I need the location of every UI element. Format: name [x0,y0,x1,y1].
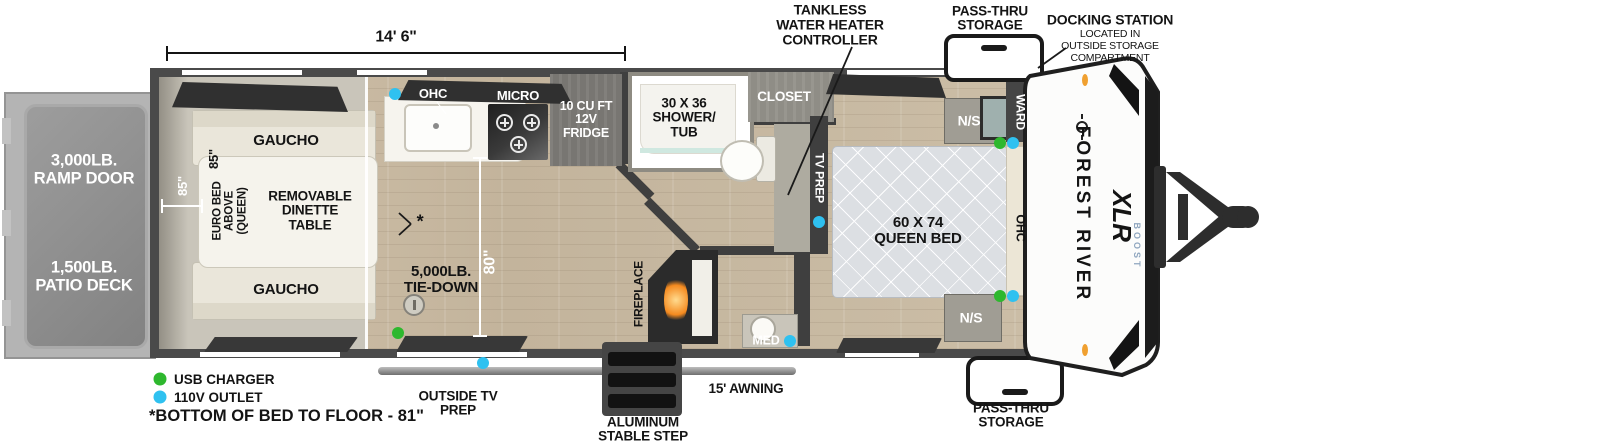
legend-usb-label: USB CHARGER [174,372,275,387]
med-cabinet-label: MED [752,334,779,347]
microwave-label: MICRO [497,89,539,103]
brand-logo-text: FOREST RIVER [1072,126,1092,302]
usb-charger-dot [994,137,1006,149]
outlet-110v-dot [389,88,401,100]
usb-charger-dot [154,373,167,386]
outlet-110v-dot [154,391,167,404]
shower-tub-label: 30 X 36 SHOWER/ TUB [652,96,715,139]
bed-to-floor-note: *BOTTOM OF BED TO FLOOR - 81" [149,407,424,426]
tv-prep-label: TV PREP [813,153,826,203]
tie-down-label: 5,000LB. TIE-DOWN [404,264,478,296]
pass-thru-bottom-label: PASS-THRU STORAGE [973,402,1049,431]
outlet-110v-dot [1007,137,1019,149]
docking-station-title: DOCKING STATION [1047,13,1173,28]
interior-width-dimension-label: 80" [481,250,498,275]
outlet-110v-dot [784,335,796,347]
bed-length-dimension-label: 85" [207,149,221,169]
nightstand-bottom-label: N/S [960,311,983,326]
closet-label: CLOSET [757,90,811,104]
gaucho-bottom-label: GAUCHO [253,282,318,298]
model-sub-logo-text: BOOST [1131,222,1141,269]
dinette-label: REMOVABLE DINETTE TABLE [268,189,351,232]
pass-thru-top-label: PASS-THRU STORAGE [952,5,1028,34]
docking-station-subtitle: LOCATED IN OUTSIDE STORAGE COMPARTMENT [1061,28,1159,64]
patio-deck-label: 1,500LB. PATIO DECK [35,259,132,294]
usb-charger-dot [392,327,404,339]
outside-tv-prep-label: OUTSIDE TV PREP [418,390,497,419]
fridge-label: 10 CU FT 12V FRIDGE [560,100,613,140]
garage-height-dimension-label: 85" [176,176,190,196]
legend-outlet-label: 110V OUTLET [174,390,263,405]
fireplace-label: FIREPLACE [633,261,646,327]
stable-step-label: ALUMINUM STABLE STEP [598,416,688,444]
floorplan-canvas: 14' 6" 3,000LB. RAMP DOOR 1,500LB. PATIO… [0,0,1600,444]
euro-bed-label: EURO BED ABOVE (QUEEN) [212,181,249,240]
nightstand-top-label: N/S [958,114,981,129]
usb-charger-dot [994,290,1006,302]
length-dimension-label: 14' 6" [375,28,416,45]
outlet-110v-dot [813,216,825,228]
tankless-water-heater-label: TANKLESS WATER HEATER CONTROLLER [776,3,884,48]
awning-label: 15' AWNING [709,382,784,396]
wardrobe-label: WARD [1014,94,1027,130]
kitchen-ohc-label: OHC [419,87,447,101]
ramp-door-label: 3,000LB. RAMP DOOR [34,152,135,187]
outlet-110v-dot [477,357,489,369]
gaucho-top-label: GAUCHO [253,133,318,149]
outlet-110v-dot [1007,290,1019,302]
tie-down-anchor-icon [403,294,425,316]
queen-bed-label: 60 X 74 QUEEN BED [874,215,961,247]
bedroom-ohc-label: OHC [1013,214,1026,241]
asterisk-note-mark: * [417,212,424,231]
